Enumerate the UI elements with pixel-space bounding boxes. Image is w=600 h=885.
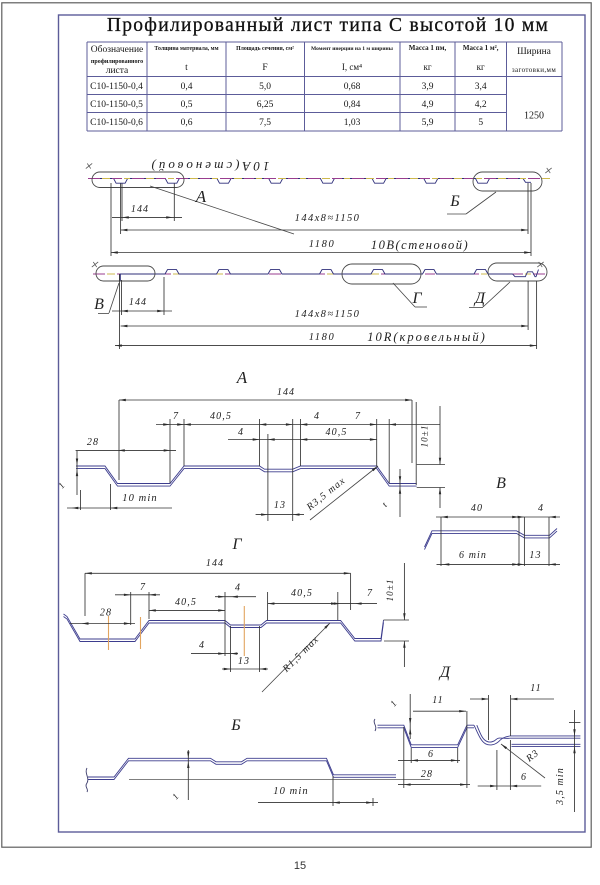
svg-text:Д: Д — [473, 290, 486, 307]
svg-text:Площадь сечения, см²: Площадь сечения, см² — [236, 46, 294, 52]
svg-text:В: В — [94, 296, 104, 313]
svg-text:А: А — [195, 187, 207, 206]
svg-text:0,68: 0,68 — [344, 82, 361, 92]
svg-text:F: F — [262, 63, 267, 73]
svg-text:С10-1150-0,6: С10-1150-0,6 — [90, 118, 143, 128]
svg-text:1180: 1180 — [309, 332, 336, 343]
svg-text:Б: Б — [449, 193, 460, 210]
svg-text:144: 144 — [129, 297, 147, 308]
svg-text:5,0: 5,0 — [259, 82, 271, 92]
svg-text:кг: кг — [477, 62, 485, 72]
svg-text:А: А — [236, 368, 248, 387]
svg-text:1250: 1250 — [524, 111, 544, 122]
svg-text:7,5: 7,5 — [259, 118, 271, 128]
svg-text:Толщина материала, мм: Толщина материала, мм — [154, 46, 218, 52]
svg-text:144x8≈1150: 144x8≈1150 — [295, 309, 361, 320]
svg-text:144x8≈1150: 144x8≈1150 — [295, 213, 361, 224]
svg-text:11: 11 — [432, 695, 443, 706]
svg-text:5,9: 5,9 — [422, 118, 434, 128]
svg-text:0,5: 0,5 — [181, 100, 193, 110]
svg-text:10±1: 10±1 — [385, 579, 395, 602]
svg-text:Момент инерции на 1 м ширины: Момент инерции на 1 м ширины — [311, 46, 394, 52]
svg-text:4,9: 4,9 — [422, 100, 434, 110]
svg-text:4: 4 — [238, 427, 244, 438]
svg-text:10А(стеновой): 10А(стеновой) — [149, 159, 270, 174]
svg-text:10±1: 10±1 — [420, 425, 430, 448]
svg-text:0,4: 0,4 — [181, 82, 193, 92]
svg-text:10В(стеновой): 10В(стеновой) — [371, 238, 469, 252]
svg-text:28: 28 — [87, 437, 99, 448]
svg-text:11: 11 — [530, 683, 541, 694]
svg-text:3,9: 3,9 — [422, 82, 434, 92]
svg-text:6: 6 — [521, 772, 527, 783]
svg-text:заготовки,мм: заготовки,мм — [512, 66, 556, 74]
svg-text:Масса 1 м²,: Масса 1 м², — [463, 44, 499, 52]
svg-text:7: 7 — [140, 582, 146, 593]
svg-text:4: 4 — [235, 583, 241, 594]
svg-text:профилированного: профилированного — [91, 58, 143, 65]
svg-text:10R(кровельный): 10R(кровельный) — [367, 330, 487, 344]
svg-text:3,5 min: 3,5 min — [555, 767, 566, 806]
svg-text:t: t — [185, 63, 188, 73]
svg-text:Б: Б — [230, 717, 241, 734]
svg-text:13: 13 — [529, 550, 541, 561]
svg-text:1,03: 1,03 — [344, 118, 361, 128]
svg-text:13: 13 — [238, 656, 250, 667]
svg-text:28: 28 — [100, 608, 112, 619]
svg-text:144: 144 — [206, 558, 224, 569]
svg-text:7: 7 — [367, 588, 373, 599]
svg-text:4,2: 4,2 — [475, 100, 487, 110]
svg-text:28: 28 — [421, 769, 433, 780]
svg-text:Г: Г — [411, 290, 422, 307]
svg-text:4: 4 — [199, 640, 205, 651]
svg-text:1180: 1180 — [309, 239, 336, 250]
svg-text:Ширина: Ширина — [517, 47, 552, 57]
svg-text:4: 4 — [314, 411, 320, 422]
svg-text:7: 7 — [173, 411, 179, 422]
svg-text:Д: Д — [438, 664, 451, 681]
svg-text:40,5: 40,5 — [326, 427, 348, 438]
svg-text:листа: листа — [106, 66, 129, 76]
svg-text:144: 144 — [131, 204, 149, 215]
svg-text:13: 13 — [274, 500, 286, 511]
svg-text:15: 15 — [294, 860, 306, 872]
svg-text:0,84: 0,84 — [344, 100, 361, 110]
svg-text:0,6: 0,6 — [181, 118, 193, 128]
svg-text:10 min: 10 min — [273, 786, 308, 797]
svg-text:6,25: 6,25 — [257, 100, 274, 110]
svg-text:3,4: 3,4 — [475, 82, 487, 92]
svg-text:144: 144 — [277, 387, 295, 398]
svg-text:40,5: 40,5 — [175, 597, 197, 608]
svg-text:Профилированный лист типа С вы: Профилированный лист типа С высотой 10 м… — [107, 15, 549, 36]
svg-text:Масса 1 пм,: Масса 1 пм, — [409, 44, 447, 52]
svg-text:6: 6 — [428, 749, 434, 760]
svg-text:40,5: 40,5 — [210, 411, 232, 422]
svg-text:40,5: 40,5 — [291, 588, 313, 599]
svg-text:4: 4 — [538, 503, 544, 514]
svg-text:10 min: 10 min — [122, 493, 157, 504]
svg-text:40: 40 — [471, 503, 483, 514]
svg-text:7: 7 — [355, 411, 361, 422]
svg-text:кг: кг — [423, 62, 431, 72]
svg-text:I, см⁴: I, см⁴ — [342, 62, 362, 72]
svg-text:Обозначение: Обозначение — [91, 44, 144, 55]
svg-text:6 min: 6 min — [459, 550, 487, 561]
svg-text:В: В — [496, 475, 506, 492]
svg-text:С10-1150-0,4: С10-1150-0,4 — [90, 82, 143, 92]
svg-text:5: 5 — [478, 118, 483, 128]
svg-text:С10-1150-0,5: С10-1150-0,5 — [90, 100, 143, 110]
svg-text:Г: Г — [231, 536, 242, 553]
